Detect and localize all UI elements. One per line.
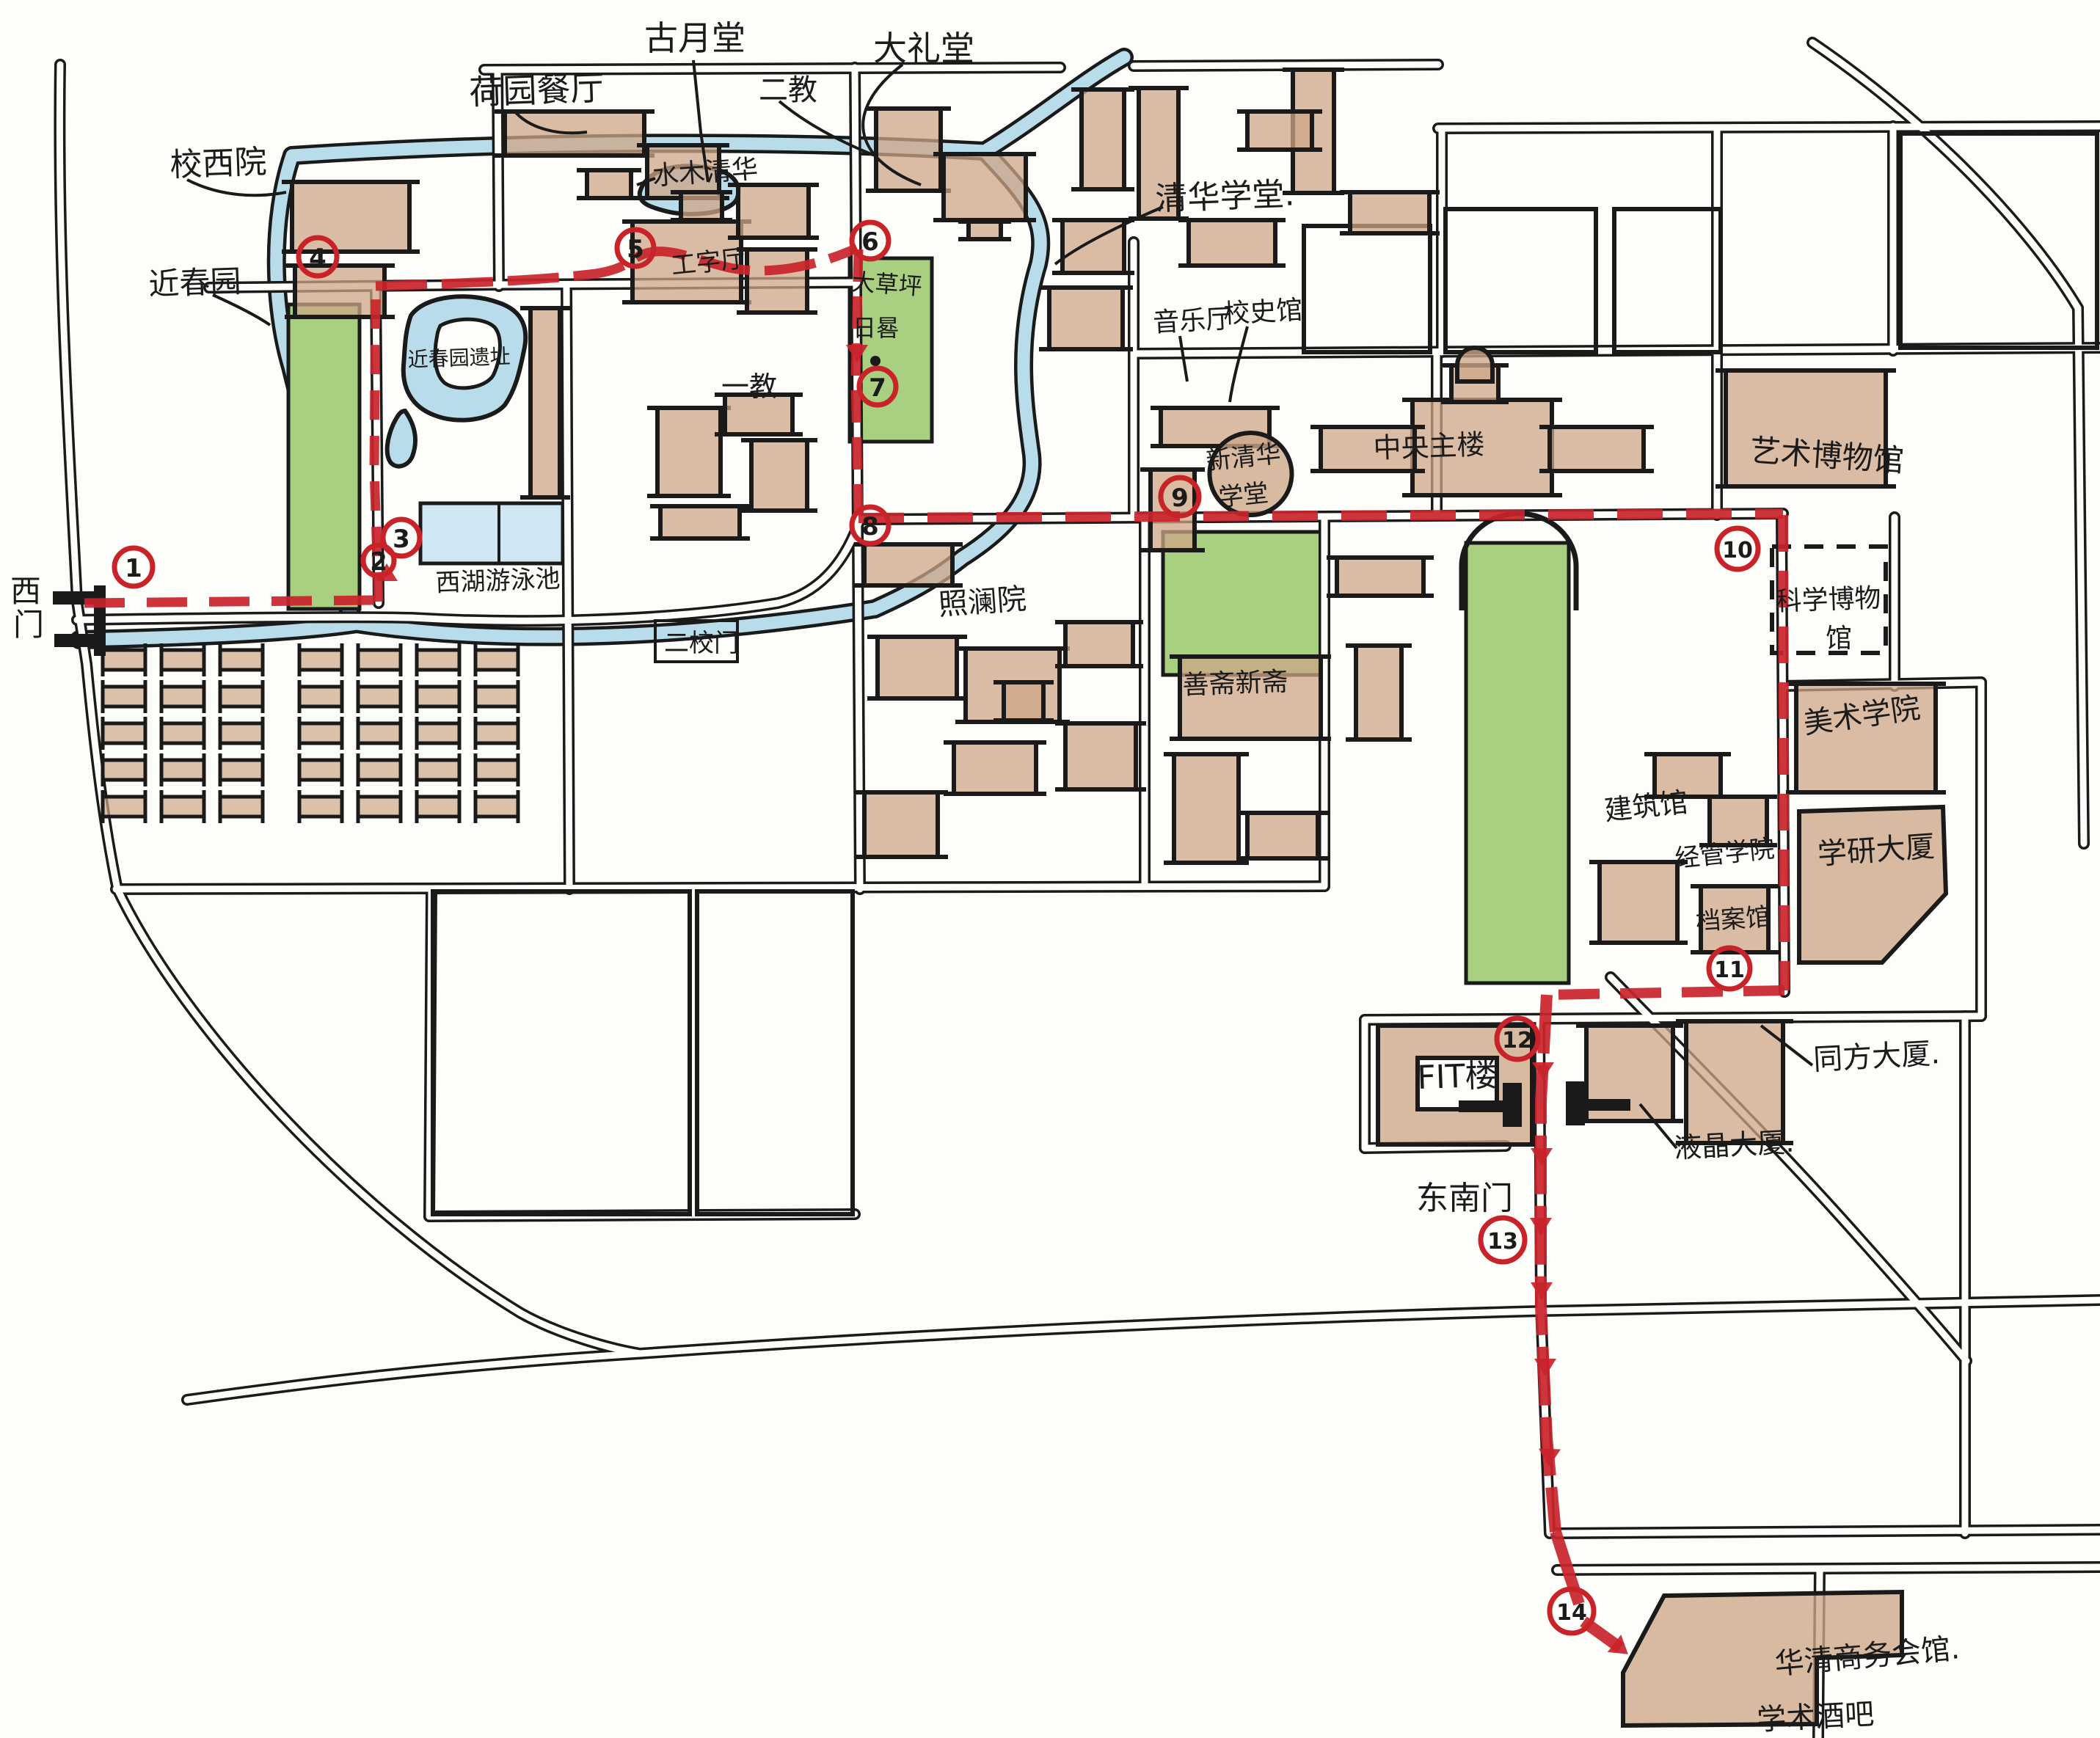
place-label: 东南门 xyxy=(1416,1180,1513,1217)
dormitory-bar xyxy=(161,760,204,780)
waypoint-number-1: 1 xyxy=(125,554,142,583)
waypoint-number-8: 8 xyxy=(861,512,879,541)
dormitory-bar xyxy=(220,760,263,780)
dormitory-bar xyxy=(417,650,459,670)
waypoint-number-11: 11 xyxy=(1714,957,1745,983)
dormitory-bar xyxy=(358,687,401,706)
building xyxy=(1004,682,1043,720)
building xyxy=(531,308,560,497)
waypoint-number-6: 6 xyxy=(861,227,879,257)
building xyxy=(864,544,952,585)
road-core xyxy=(566,286,569,889)
dormitory-bar xyxy=(358,650,401,670)
building xyxy=(1337,558,1423,596)
road-core xyxy=(1557,1567,2100,1570)
place-label: 校西院 xyxy=(169,143,268,184)
building xyxy=(1356,646,1401,740)
building xyxy=(681,192,722,220)
dormitory-bar xyxy=(475,650,518,670)
main-building-dome xyxy=(1457,348,1492,381)
west-gate-mark xyxy=(94,585,106,656)
building xyxy=(657,408,721,496)
building xyxy=(747,249,807,313)
building xyxy=(878,637,957,698)
southeast-gate-mark xyxy=(1459,1100,1506,1112)
dormitory-bar xyxy=(103,760,145,780)
campus-map-canvas: 1234567891011121314西门校西院近春园古月堂荷园餐厅水木清华二教… xyxy=(0,0,2100,1738)
dormitory-bar xyxy=(475,760,518,780)
waypoint-number-9: 9 xyxy=(1171,483,1189,513)
place-label: 学术酒吧 xyxy=(1756,1698,1875,1737)
dormitory-bar xyxy=(475,723,518,743)
dormitory-bar xyxy=(161,797,204,817)
place-label: 校史馆 xyxy=(1222,295,1303,329)
southeast-gate-mark xyxy=(1566,1081,1585,1125)
building xyxy=(1247,112,1312,150)
waypoint-number-13: 13 xyxy=(1487,1229,1518,1255)
place-label: 善斋新斋 xyxy=(1182,667,1288,701)
dormitory-bar xyxy=(417,760,459,780)
building xyxy=(587,170,631,198)
main-building-green-mall xyxy=(1466,543,1569,983)
place-label: 馆 xyxy=(1826,624,1852,654)
place-label: 科学博物 xyxy=(1775,583,1881,617)
road-core xyxy=(1438,126,2100,128)
road-core xyxy=(1365,1016,1981,1020)
west-gate-mark xyxy=(54,634,95,647)
hand-drawn-campus-map: 1234567891011121314西门校西院近春园古月堂荷园餐厅水木清华二教… xyxy=(0,0,2100,1738)
place-label: 音乐厅 xyxy=(1152,304,1233,338)
building xyxy=(1189,220,1275,266)
lawn-south-of-road xyxy=(1163,532,1321,675)
place-label: 一教 xyxy=(721,370,777,403)
dormitory-bar xyxy=(358,760,401,780)
building xyxy=(1350,192,1429,233)
building xyxy=(944,154,1026,220)
building xyxy=(1065,622,1133,666)
dormitory-bar xyxy=(475,687,518,706)
dormitory-bar xyxy=(417,797,459,817)
building xyxy=(1049,288,1123,349)
dormitory-bar xyxy=(299,687,342,706)
dormitory-bar xyxy=(299,797,342,817)
waypoint-number-14: 14 xyxy=(1556,1600,1587,1626)
dormitory-bar xyxy=(220,723,263,743)
place-label: 门 xyxy=(13,607,44,643)
waypoint-number-5: 5 xyxy=(627,235,644,264)
dormitory-bar xyxy=(103,723,145,743)
dormitory-bar xyxy=(417,723,459,743)
dormitory-bar xyxy=(220,687,263,706)
waypoint-number-10: 10 xyxy=(1722,538,1753,563)
dormitory-bar xyxy=(161,687,204,706)
building xyxy=(1550,427,1644,471)
dormitory-bar xyxy=(358,723,401,743)
building xyxy=(1600,862,1677,943)
place-label: 液晶大厦. xyxy=(1673,1125,1795,1164)
place-label: 近春园遗址 xyxy=(407,344,511,372)
waypoint-number-12: 12 xyxy=(1502,1028,1533,1054)
building xyxy=(660,506,740,538)
place-label: 大草坪 xyxy=(850,268,922,301)
dormitory-bar xyxy=(161,723,204,743)
waypoint-number-2: 2 xyxy=(370,547,387,577)
building xyxy=(954,742,1036,794)
dormitory-bar xyxy=(299,650,342,670)
waypoint-number-4: 4 xyxy=(309,244,327,273)
dormitory-bar xyxy=(358,797,401,817)
place-label: FIT楼 xyxy=(1417,1056,1498,1097)
place-label: 二教 xyxy=(759,73,817,107)
building xyxy=(1174,754,1239,863)
road-core xyxy=(1557,1530,2100,1533)
waypoint-number-7: 7 xyxy=(869,373,886,403)
building xyxy=(1065,723,1136,789)
building xyxy=(969,222,1001,239)
place-label: 大礼堂 xyxy=(873,29,974,68)
swimming-pool xyxy=(420,503,563,563)
building xyxy=(864,792,938,857)
place-label: 日晷 xyxy=(853,314,900,342)
dormitory-bar xyxy=(475,797,518,817)
dormitory-bar xyxy=(103,650,145,670)
building xyxy=(738,185,809,238)
dormitory-bar xyxy=(103,797,145,817)
dormitory-bar xyxy=(299,760,342,780)
place-label: 清华学堂. xyxy=(1155,175,1296,218)
dormitory-bar xyxy=(220,650,263,670)
waypoint-number-3: 3 xyxy=(393,525,410,554)
place-label: 西湖游泳池 xyxy=(435,564,561,598)
building xyxy=(1247,813,1318,858)
dormitory-bar xyxy=(417,687,459,706)
lvyuan-lawn xyxy=(288,304,360,609)
place-label: 学堂 xyxy=(1217,478,1270,513)
place-label: 荷园餐厅 xyxy=(468,68,605,112)
place-label: 档案馆 xyxy=(1695,902,1772,937)
place-label: 西 xyxy=(10,573,41,609)
place-label: 同方大厦. xyxy=(1812,1037,1941,1077)
place-label: 近春园 xyxy=(148,263,242,302)
building xyxy=(1082,90,1124,189)
dormitory-bar xyxy=(220,797,263,817)
road-core xyxy=(1134,65,1438,66)
dormitory-bar xyxy=(299,723,342,743)
building xyxy=(751,440,807,511)
building xyxy=(1686,1021,1783,1143)
dormitory-bar xyxy=(161,650,204,670)
dormitory-bar xyxy=(103,687,145,706)
place-label: 二校门 xyxy=(664,629,739,658)
place-label: 古月堂 xyxy=(644,18,745,58)
southeast-gate-mark xyxy=(1586,1099,1630,1111)
sundial-dot xyxy=(870,356,881,366)
place-label: 中央主楼 xyxy=(1373,428,1485,464)
place-label: 照澜院 xyxy=(937,583,1027,622)
